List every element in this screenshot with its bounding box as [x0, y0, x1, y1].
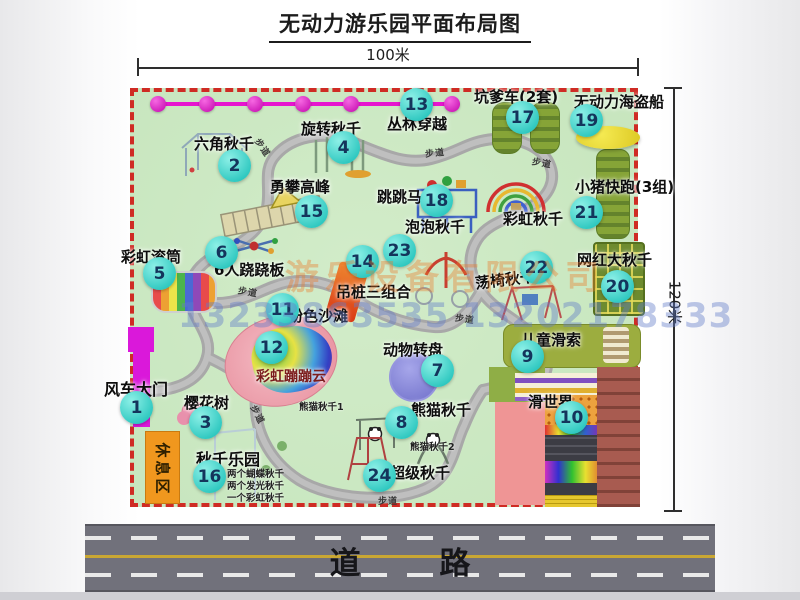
badge-10: 10 [555, 401, 588, 434]
rest-area-label: 休息区 [153, 435, 174, 505]
badge-6: 6 [205, 236, 238, 269]
badge-9: 9 [511, 340, 544, 373]
zipline-dot [150, 96, 166, 112]
page-title-text: 无动力游乐园平面布局图 [269, 8, 531, 43]
dimension-tick-left [137, 58, 139, 76]
road: 道 路 [85, 524, 715, 592]
slide-world-dark-section [545, 483, 599, 495]
zipline-dot [444, 96, 460, 112]
dimension-line-width [138, 67, 638, 69]
badge-16: 16 [193, 460, 226, 493]
label-rainbow-bounce-cloud: 彩虹蹦蹦云 [256, 366, 326, 386]
badge-21: 21 [570, 196, 603, 229]
badge-24: 24 [363, 459, 396, 492]
label-rainbow-swing: 彩虹秋千 [503, 208, 563, 229]
road-label: 道 路 [85, 538, 715, 583]
slide-world-wave-slide [545, 495, 599, 507]
label-piggy-run: 小猪快跑(3组) [575, 176, 674, 197]
dimension-tick-right [637, 58, 639, 76]
label-jumping-horse: 跳跳马 [377, 186, 422, 207]
badge-13: 13 [400, 88, 433, 121]
zipline-dot [295, 96, 311, 112]
path-label: 步道 [424, 145, 445, 160]
zipline-dot [343, 96, 359, 112]
dimension-width-label: 100米 [348, 44, 428, 65]
badge-1: 1 [120, 391, 153, 424]
zipline-dot [199, 96, 215, 112]
page-title: 无动力游乐园平面布局图 [0, 8, 800, 43]
slide-world-rainbow-slide [545, 461, 599, 483]
slide-world-dark-section [545, 435, 599, 461]
badge-5: 5 [143, 257, 176, 290]
watermark-phone: 13233863535 13202178333 [178, 296, 733, 336]
slide-world-icon [489, 367, 640, 507]
label-hexagon-swing: 六角秋千 [194, 133, 254, 154]
badge-7: 7 [421, 354, 454, 387]
label-bubble-swing: 泡泡秋千 [405, 216, 465, 237]
slide-world-pink-block [495, 402, 545, 505]
rest-area-box: 休息区 [145, 431, 180, 504]
badge-4: 4 [327, 131, 360, 164]
label-climbing-peak: 勇攀高峰 [270, 176, 330, 197]
dimension-tick-bottom [664, 510, 682, 512]
slide-world-brick-block [597, 367, 640, 507]
badge-15: 15 [295, 195, 328, 228]
label-panda-swing-1: 熊猫秋千1 [299, 399, 344, 413]
swing-park-note: 一个彩虹秋千 [227, 490, 284, 504]
badge-19: 19 [570, 104, 603, 137]
park-layout-poster: 无动力游乐园平面布局图 100米 120米 [0, 0, 800, 600]
label-panda-swing: 熊猫秋千 [411, 399, 471, 420]
badge-8: 8 [385, 406, 418, 439]
label-panda-swing-2: 熊猫秋千2 [410, 439, 455, 453]
zipline-dot [247, 96, 263, 112]
badge-18: 18 [420, 184, 453, 217]
badge-17: 17 [506, 101, 539, 134]
label-super-swing: 超级秋千 [390, 462, 450, 483]
dimension-tick-top [664, 87, 682, 89]
badge-3: 3 [189, 406, 222, 439]
watermark-company: 游乐设备有限公司 [285, 250, 605, 299]
path-label: 步道 [378, 494, 398, 507]
photo-bottom-edge [0, 592, 800, 600]
badge-2: 2 [218, 149, 251, 182]
windmill-gate-icon [128, 327, 154, 352]
